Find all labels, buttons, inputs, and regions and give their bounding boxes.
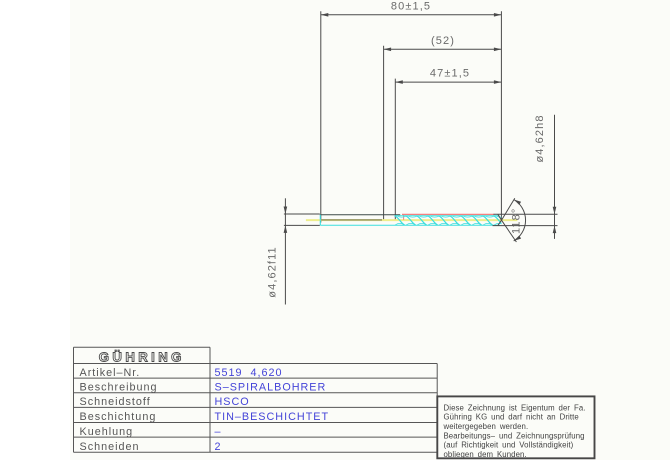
svg-text:47±1,5: 47±1,5 [430,68,470,80]
svg-text:(52): (52) [431,35,455,47]
svg-text:Beschichtung: Beschichtung [80,411,157,423]
svg-text:5519 4,620: 5519 4,620 [215,367,283,379]
svg-text:(auf Richtigkeit und Vollständ: (auf Richtigkeit und Vollständigkeit) [444,441,574,450]
svg-text:weitergegeben werden.: weitergegeben werden. [443,422,529,431]
svg-text:80±1,5: 80±1,5 [391,1,431,13]
svg-text:Bearbeitungs– und Zeichnungspr: Bearbeitungs– und Zeichnungsprüfung [444,431,585,440]
svg-text:Beschreibung: Beschreibung [80,382,158,394]
svg-text:Artikel–Nr.: Artikel–Nr. [80,367,141,379]
svg-text:Diese Zeichnung ist Eigentum d: Diese Zeichnung ist Eigentum der Fa. [444,403,586,412]
svg-text:obliegen dem Kunden.: obliegen dem Kunden. [444,450,527,459]
svg-text:Kuehlung: Kuehlung [80,426,134,438]
svg-text:ø4,62h8: ø4,62h8 [534,114,546,162]
svg-text:S–SPIRALBOHRER: S–SPIRALBOHRER [215,382,327,394]
svg-text:HSCO: HSCO [215,396,250,408]
svg-text:GÜHRING: GÜHRING [99,349,185,364]
svg-text:Schneiden: Schneiden [80,441,140,453]
svg-text:–: – [215,426,222,438]
svg-text:118°: 118° [511,208,523,234]
svg-text:Schneidstoff: Schneidstoff [80,396,151,408]
svg-text:TIN–BESCHICHTET: TIN–BESCHICHTET [215,411,330,423]
svg-text:ø4,62f11: ø4,62f11 [267,246,279,297]
svg-text:Gühring KG und darf nicht an D: Gühring KG und darf nicht an Dritte [444,413,579,422]
svg-text:2: 2 [215,441,222,453]
